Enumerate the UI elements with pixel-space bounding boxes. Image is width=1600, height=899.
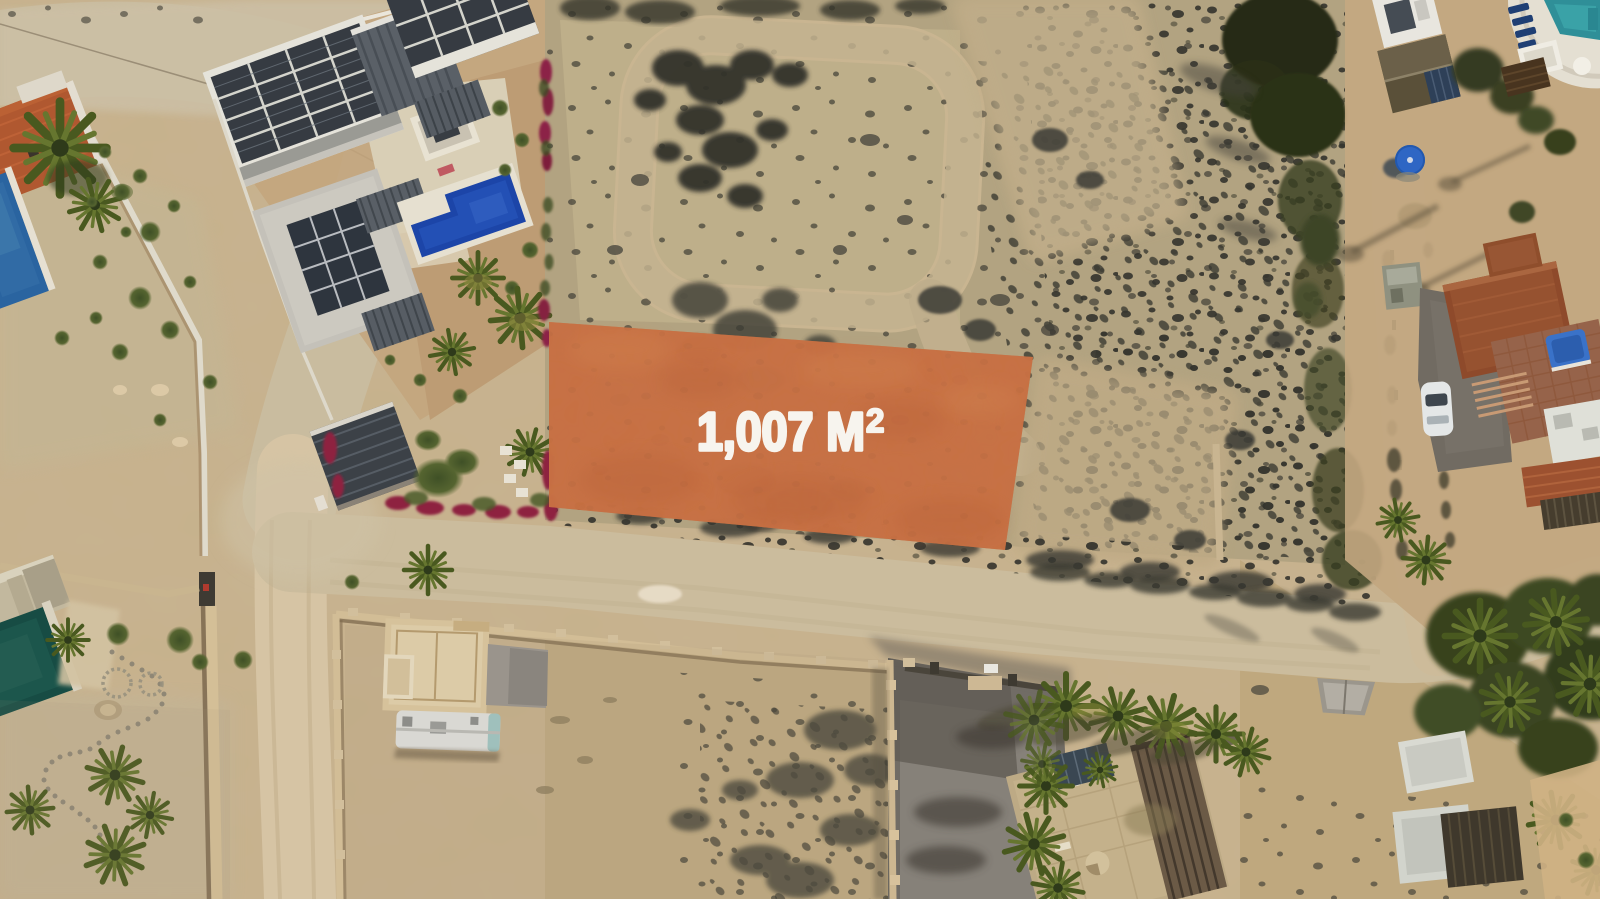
svg-text:1,007 M: 1,007 M [697, 402, 865, 462]
svg-text:2: 2 [866, 402, 884, 439]
